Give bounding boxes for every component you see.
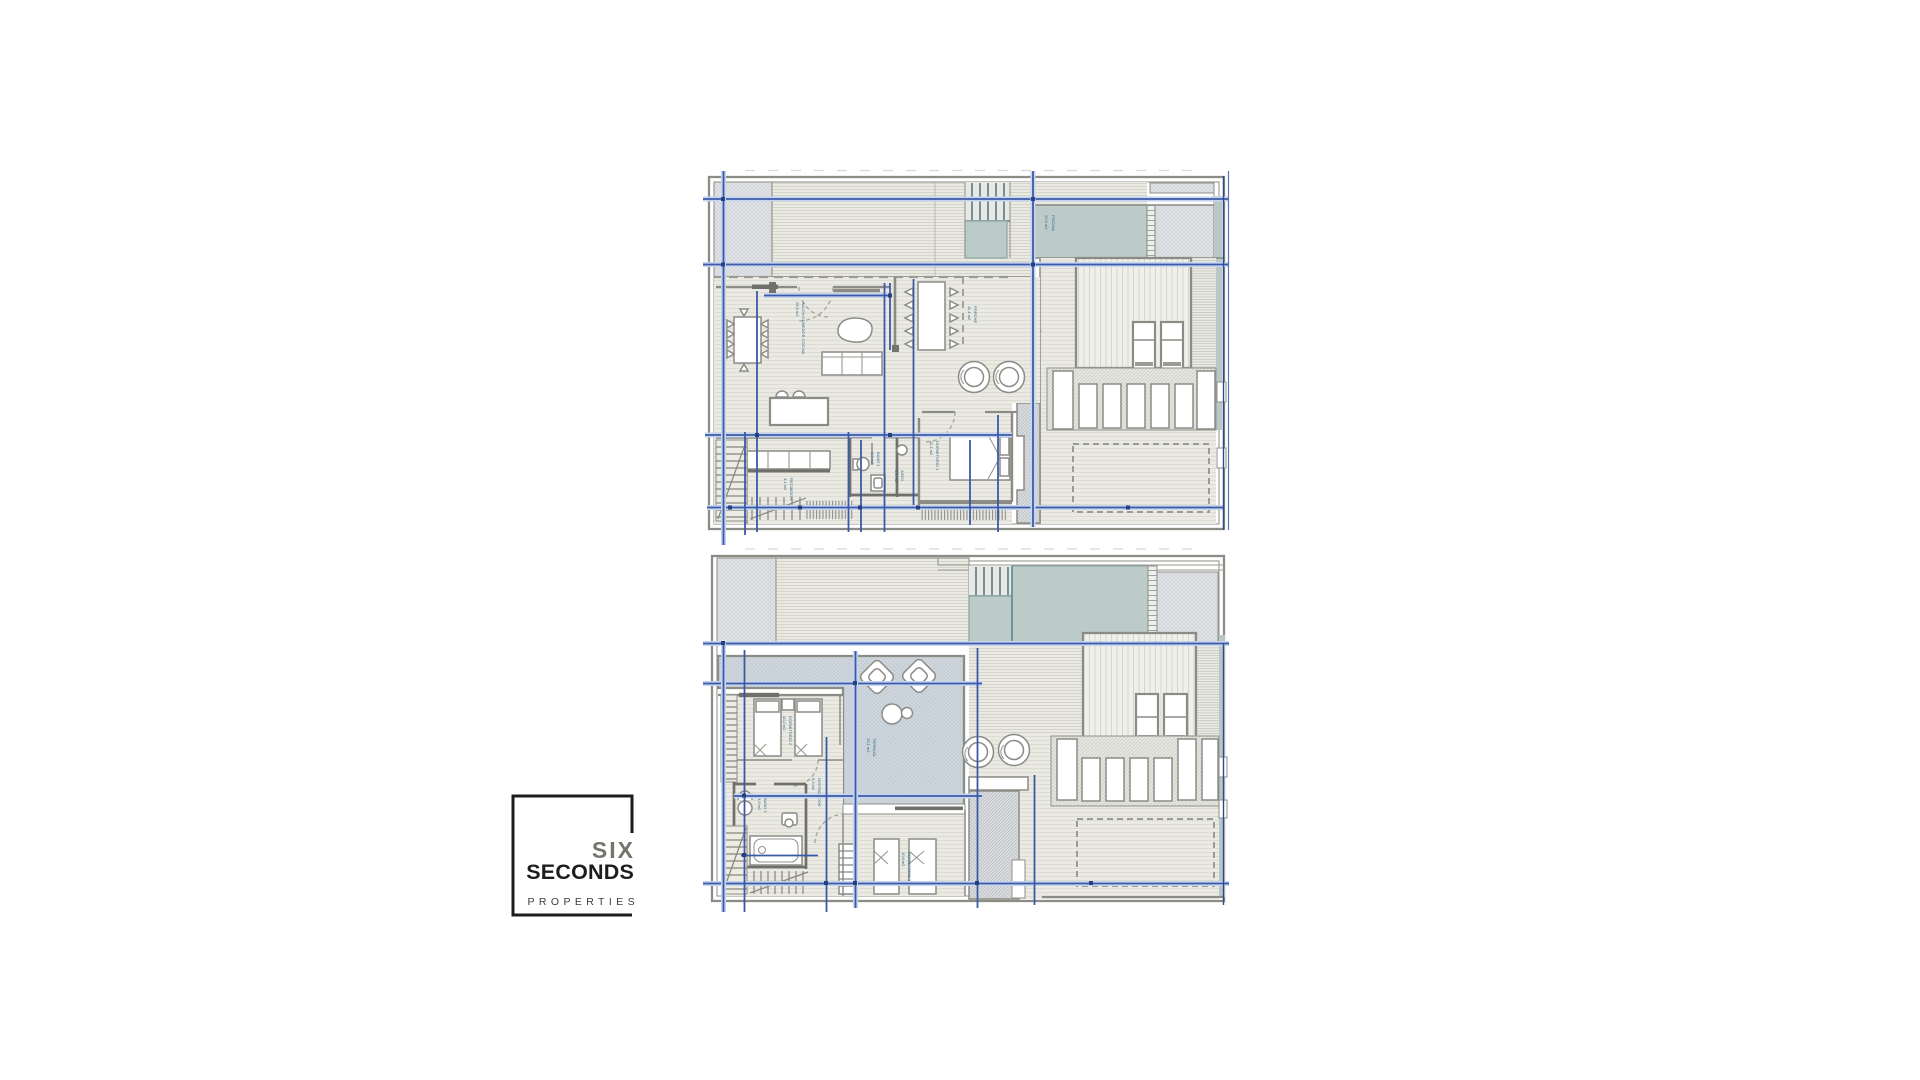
svg-text:PISCINA: PISCINA: [1051, 215, 1056, 231]
svg-text:3,9 m2: 3,9 m2: [870, 452, 875, 465]
svg-text:SECONDS: SECONDS: [526, 860, 634, 884]
svg-text:4,1 m2: 4,1 m2: [783, 478, 788, 491]
svg-text:TERRAZA: TERRAZA: [872, 738, 877, 757]
svg-text:DORMITORIO 3: DORMITORIO 3: [907, 852, 912, 882]
svg-text:11,1 m2: 11,1 m2: [929, 441, 934, 456]
svg-text:4,6 m2: 4,6 m2: [757, 798, 762, 811]
svg-text:10,8 m2: 10,8 m2: [901, 852, 906, 867]
svg-text:PORCHE: PORCHE: [973, 306, 978, 323]
svg-text:6,3 m2: 6,3 m2: [811, 778, 816, 791]
svg-text:PROPERTIES: PROPERTIES: [528, 896, 640, 908]
svg-text:DORMITORIO 1: DORMITORIO 1: [935, 441, 940, 471]
svg-text:28,5 m2: 28,5 m2: [795, 302, 800, 317]
svg-text:19,1 m2: 19,1 m2: [866, 738, 871, 753]
svg-text:DISTRIBUIDOR: DISTRIBUIDOR: [817, 778, 822, 807]
svg-text:2,1 m2: 2,1 m2: [894, 470, 899, 483]
svg-text:BANO 1: BANO 1: [876, 452, 881, 467]
svg-text:22,5 m2: 22,5 m2: [1044, 215, 1049, 230]
svg-text:10,2 m2: 10,2 m2: [782, 716, 787, 731]
svg-text:DORMITORIO 2: DORMITORIO 2: [788, 716, 793, 746]
svg-text:BANO 2: BANO 2: [763, 798, 768, 813]
svg-text:SALON COMEDOR COCINA: SALON COMEDOR COCINA: [801, 302, 806, 355]
svg-text:11,4 m2: 11,4 m2: [967, 306, 972, 321]
svg-text:RECIBIDOR: RECIBIDOR: [789, 478, 794, 500]
svg-text:ASEO: ASEO: [900, 470, 905, 481]
